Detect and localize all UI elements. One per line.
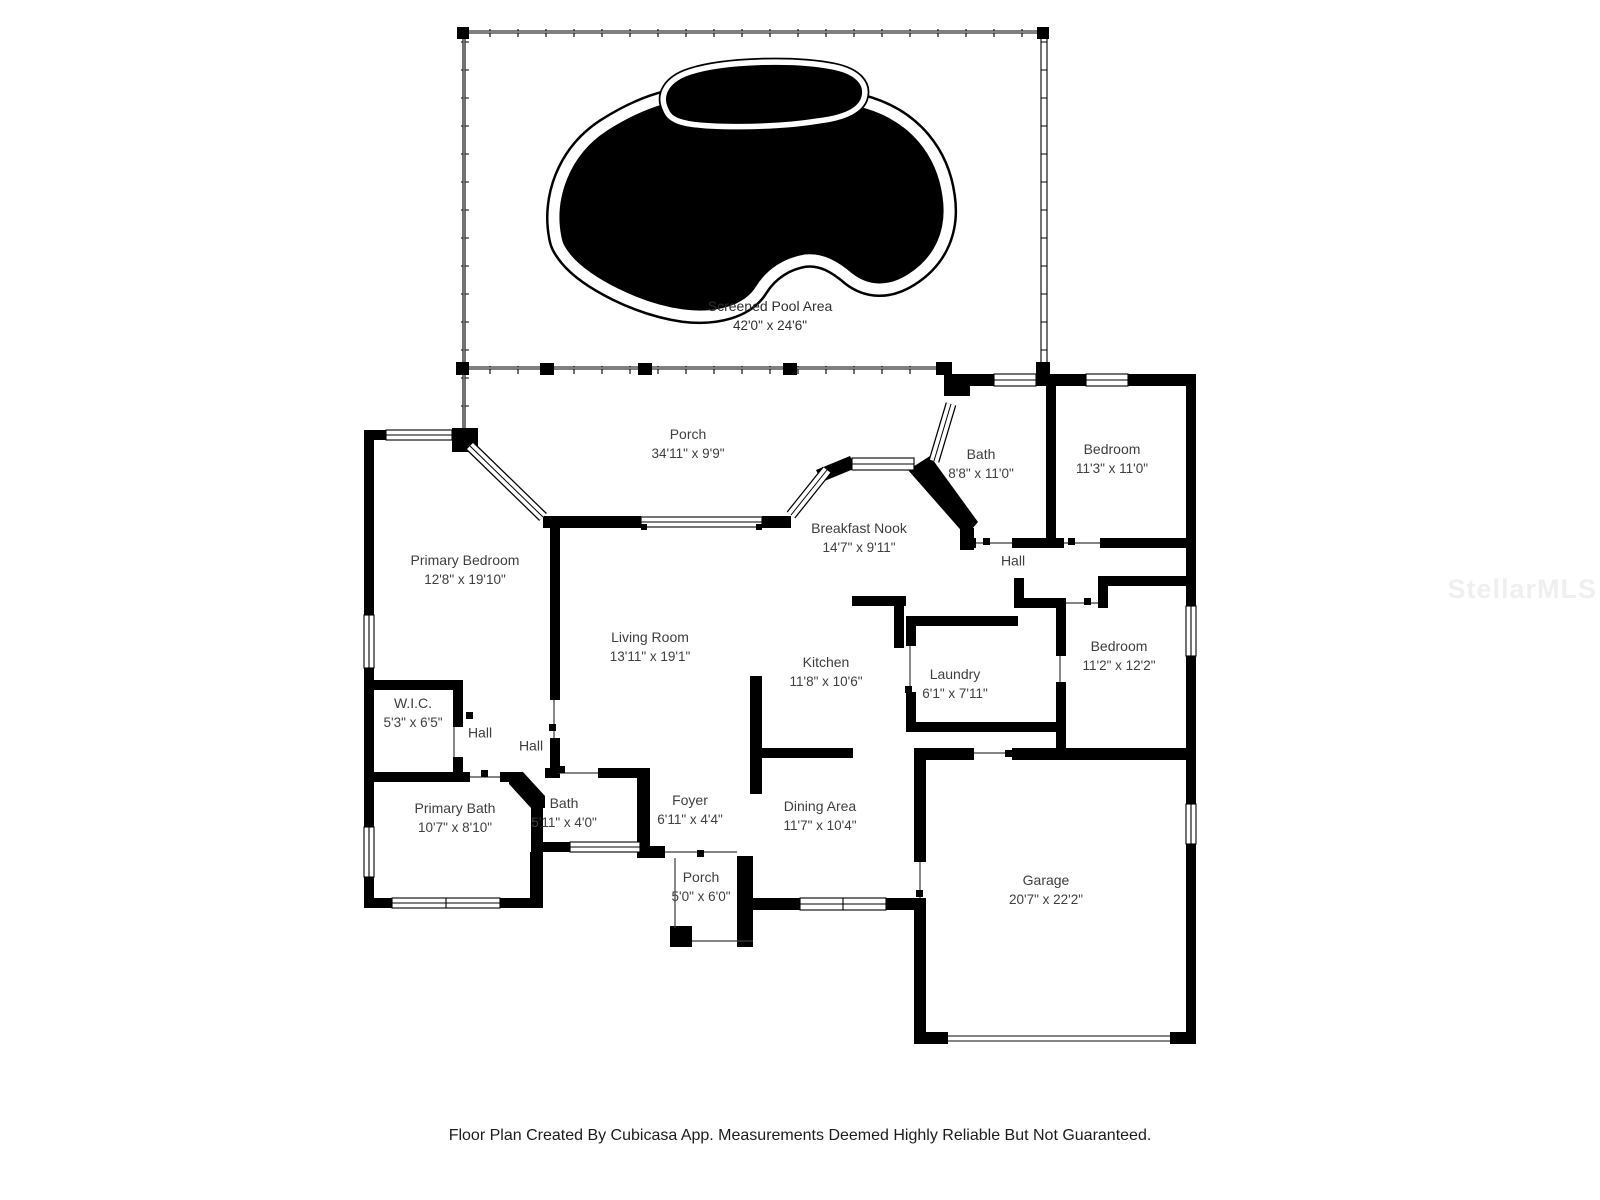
room-dimensions: 10'7" x 8'10" (415, 818, 496, 837)
stellar-mls-watermark: StellarMLS (1447, 574, 1597, 605)
room-name: Hall (1001, 552, 1025, 571)
room-label-wic: W.I.C. 5'3" x 6'5" (383, 694, 442, 732)
room-dimensions: 11'8" x 10'6" (789, 672, 862, 691)
room-dimensions: 11'7" x 10'4" (783, 816, 856, 835)
room-label-breakfast-nook: Breakfast Nook 14'7" x 9'11" (811, 519, 907, 557)
floor-plan-drawing (0, 0, 1600, 1200)
spa-water (663, 62, 865, 126)
room-label-foyer: Foyer 6'11" x 4'4" (657, 791, 723, 829)
room-dimensions: 14'7" x 9'11" (811, 538, 907, 557)
room-label-dining-area: Dining Area 11'7" x 10'4" (783, 797, 856, 835)
house-walls (364, 374, 1196, 1044)
room-dimensions: 6'11" x 4'4" (657, 810, 723, 829)
room-name: Porch (671, 868, 730, 887)
room-label-bedroom-top: Bedroom 11'3" x 11'0" (1076, 440, 1148, 478)
room-dimensions: 42'0" x 24'6" (708, 316, 833, 335)
room-dimensions: 8'8" x 11'0" (948, 464, 1014, 483)
room-label-bedroom-mid: Bedroom 11'2" x 12'2" (1082, 637, 1155, 675)
room-name: Screened Pool Area (708, 297, 833, 316)
room-label-laundry: Laundry 6'1" x 7'11" (922, 665, 988, 703)
room-name: Bedroom (1082, 637, 1155, 656)
room-dimensions: 5'11" x 4'0" (531, 813, 597, 832)
room-name: Porch (651, 425, 724, 444)
swimming-pool (554, 62, 949, 316)
room-label-hall-left-2: Hall (519, 737, 543, 756)
room-label-porch-entry: Porch 5'0" x 6'0" (671, 868, 730, 906)
room-name: W.I.C. (383, 694, 442, 713)
room-name: Laundry (922, 665, 988, 684)
room-dimensions: 12'8" x 19'10" (411, 570, 520, 589)
room-label-living-room: Living Room 13'11" x 19'1" (610, 628, 691, 666)
room-name: Primary Bath (415, 799, 496, 818)
room-dimensions: 5'3" x 6'5" (383, 713, 442, 732)
room-label-primary-bath: Primary Bath 10'7" x 8'10" (415, 799, 496, 837)
room-name: Hall (519, 737, 543, 756)
room-label-primary-bedroom: Primary Bedroom 12'8" x 19'10" (411, 551, 520, 589)
room-dimensions: 34'11" x 9'9" (651, 444, 724, 463)
room-name: Dining Area (783, 797, 856, 816)
room-label-screened-pool-area: Screened Pool Area 42'0" x 24'6" (708, 297, 833, 335)
room-name: Living Room (610, 628, 691, 647)
room-label-bath-top: Bath 8'8" x 11'0" (948, 445, 1014, 483)
room-name: Bath (948, 445, 1014, 464)
room-label-hall-right: Hall (1001, 552, 1025, 571)
room-dimensions: 6'1" x 7'11" (922, 684, 988, 703)
room-name: Kitchen (789, 653, 862, 672)
room-dimensions: 20'7" x 22'2" (1009, 890, 1083, 909)
floor-plan-page: Screened Pool Area 42'0" x 24'6" Porch 3… (0, 0, 1600, 1200)
room-name: Hall (468, 724, 492, 743)
room-dimensions: 11'2" x 12'2" (1082, 656, 1155, 675)
room-label-kitchen: Kitchen 11'8" x 10'6" (789, 653, 862, 691)
room-label-porch-top: Porch 34'11" x 9'9" (651, 425, 724, 463)
room-dimensions: 11'3" x 11'0" (1076, 459, 1148, 478)
room-name: Primary Bedroom (411, 551, 520, 570)
room-name: Garage (1009, 871, 1083, 890)
disclaimer-text: Floor Plan Created By Cubicasa App. Meas… (0, 1127, 1600, 1145)
room-name: Breakfast Nook (811, 519, 907, 538)
room-label-garage: Garage 20'7" x 22'2" (1009, 871, 1083, 909)
room-label-hall-left: Hall (468, 724, 492, 743)
room-dimensions: 5'0" x 6'0" (671, 887, 730, 906)
room-name: Bedroom (1076, 440, 1148, 459)
room-name: Bath (531, 794, 597, 813)
room-name: Foyer (657, 791, 723, 810)
room-label-bath-small: Bath 5'11" x 4'0" (531, 794, 597, 832)
room-dimensions: 13'11" x 19'1" (610, 647, 691, 666)
